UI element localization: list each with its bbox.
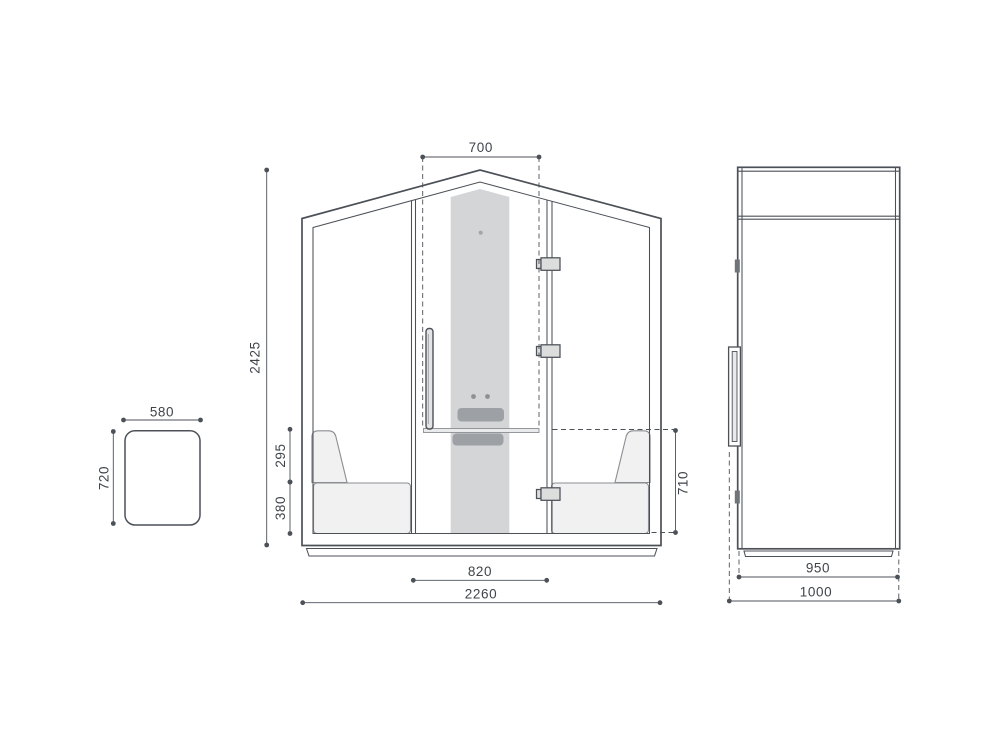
side-outer-outline [738, 167, 900, 549]
dim-label-295: 295 [273, 443, 288, 467]
door-hinge-bottom [537, 488, 561, 501]
dim-tabletop-height: 710 [673, 428, 690, 535]
base-plinth-front [307, 549, 658, 557]
side-door-handle-inner [732, 352, 737, 442]
dim-label-950: 950 [806, 561, 830, 576]
backrest-left [312, 431, 347, 483]
dim-label-700: 700 [469, 140, 493, 155]
table-surface [424, 429, 540, 433]
dim-overall-height: 2425 [248, 168, 270, 548]
dim-label-820: 820 [468, 564, 492, 579]
dim-table-span: 820 [411, 564, 549, 583]
seat-left [314, 483, 411, 534]
drawing-canvas: 580 720 [0, 0, 1000, 755]
dim-label-2425: 2425 [248, 341, 263, 373]
technical-drawing: 580 720 [0, 0, 1000, 755]
dim-overall-depth: 1000 [727, 585, 901, 604]
backrest-right [615, 431, 650, 483]
ceiling-sensor-dot [479, 231, 483, 235]
under-table-unit [453, 434, 504, 446]
seat-right [552, 483, 649, 534]
side-hinge-nub-bottom [735, 491, 740, 504]
door-hinge-top [537, 258, 561, 271]
dim-label-710: 710 [676, 471, 691, 495]
dim-seat-height: 380 [273, 480, 292, 536]
tabletop-top-view: 580 720 [97, 405, 203, 526]
dim-label-2260: 2260 [465, 587, 497, 602]
dim-label-720: 720 [97, 466, 112, 490]
door-handle [426, 329, 433, 430]
door-hinge-middle [537, 345, 561, 358]
dim-tabletop-depth: 720 [97, 429, 116, 526]
dim-label-580: 580 [150, 405, 174, 420]
dim-body-depth: 950 [737, 561, 900, 580]
socket-dot-left [471, 394, 476, 399]
base-plinth-side [744, 551, 893, 557]
side-hinge-nub-top [735, 260, 740, 273]
power-outlet-panel [458, 408, 505, 422]
dim-overall-width: 2260 [300, 587, 662, 606]
side-elevation-view: 950 1000 [727, 167, 901, 603]
dim-door-opening-width: 700 [420, 140, 541, 159]
dim-label-380: 380 [273, 496, 288, 520]
dim-backrest-height: 295 [273, 427, 292, 485]
door-glass-panel [451, 189, 510, 534]
tabletop-outline [125, 431, 200, 525]
front-elevation-view: 700 2425 295 380 820 [248, 140, 691, 605]
dim-label-1000: 1000 [800, 585, 832, 600]
socket-dot-right [485, 394, 490, 399]
dim-tabletop-width: 580 [121, 405, 203, 423]
